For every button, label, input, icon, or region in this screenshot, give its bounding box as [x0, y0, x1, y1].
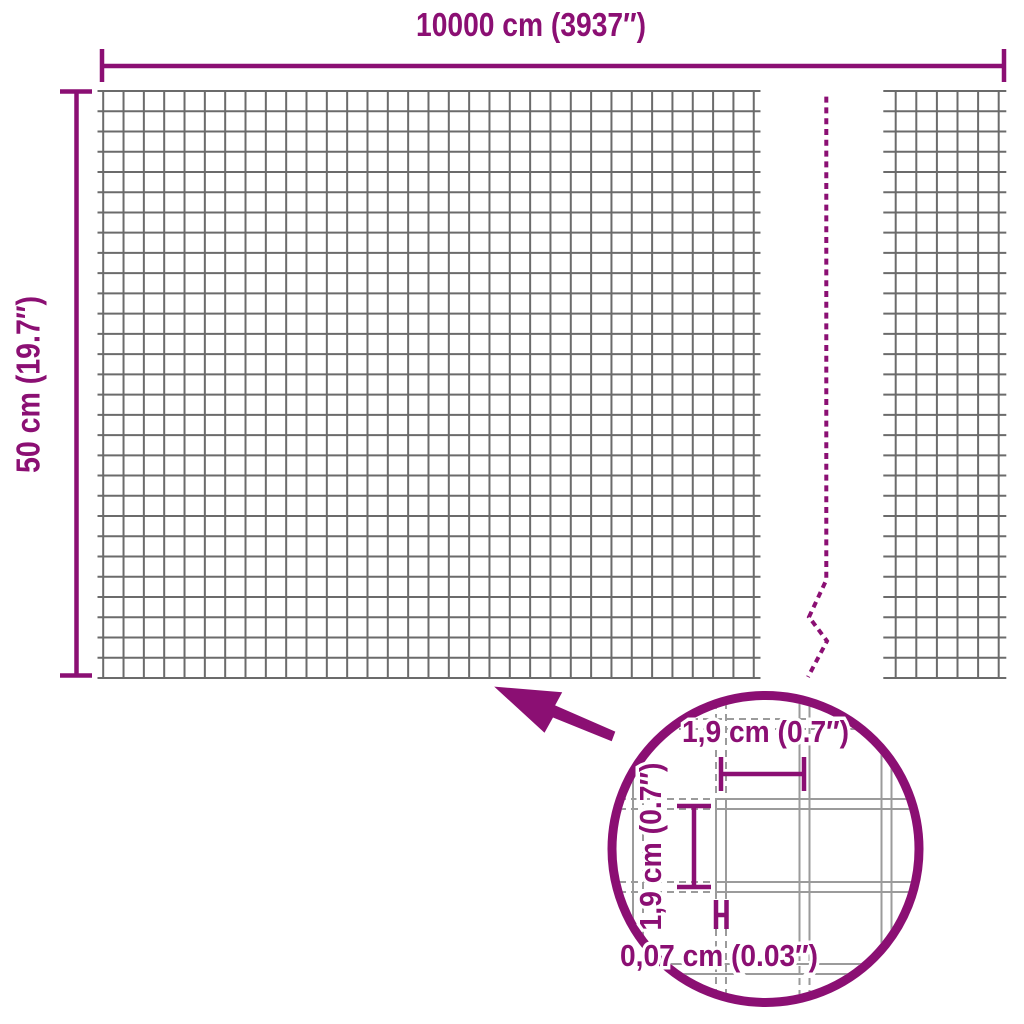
svg-text:1,9 cm (0.7″): 1,9 cm (0.7″): [633, 763, 668, 931]
svg-text:10000 cm (3937″): 10000 cm (3937″): [416, 6, 646, 43]
svg-text:0,07 cm (0.03″): 0,07 cm (0.03″): [620, 938, 818, 973]
svg-text:50 cm (19.7″): 50 cm (19.7″): [9, 296, 46, 473]
svg-text:1,9 cm (0.7″): 1,9 cm (0.7″): [682, 714, 849, 749]
